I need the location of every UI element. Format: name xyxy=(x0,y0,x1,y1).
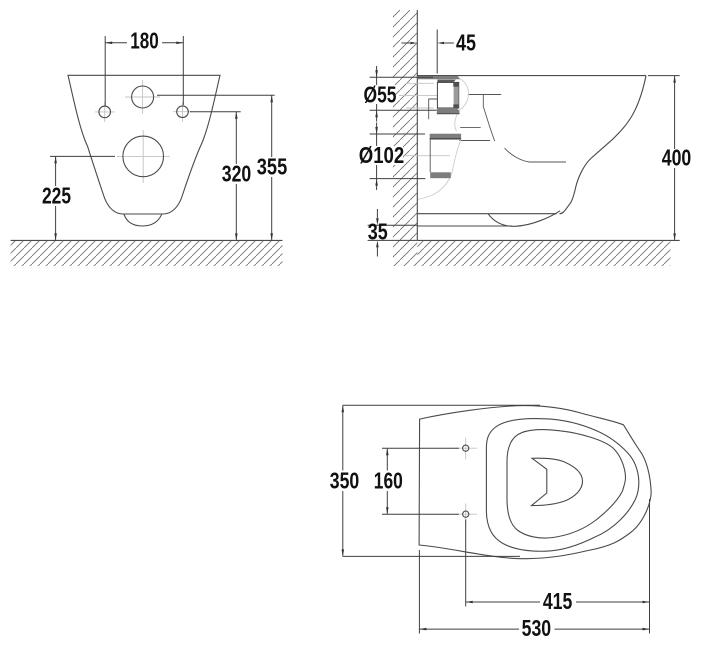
svg-text:530: 530 xyxy=(522,615,552,641)
svg-text:355: 355 xyxy=(257,154,288,180)
svg-text:320: 320 xyxy=(222,161,252,187)
svg-text:400: 400 xyxy=(662,145,692,171)
svg-text:350: 350 xyxy=(330,468,360,494)
svg-text:415: 415 xyxy=(543,588,573,614)
svg-text:45: 45 xyxy=(456,30,476,56)
svg-text:35: 35 xyxy=(368,218,388,244)
svg-text:160: 160 xyxy=(374,468,403,494)
svg-text:180: 180 xyxy=(130,28,158,54)
svg-text:Ø55: Ø55 xyxy=(364,82,397,108)
svg-text:225: 225 xyxy=(42,183,71,209)
svg-text:Ø102: Ø102 xyxy=(359,142,405,168)
